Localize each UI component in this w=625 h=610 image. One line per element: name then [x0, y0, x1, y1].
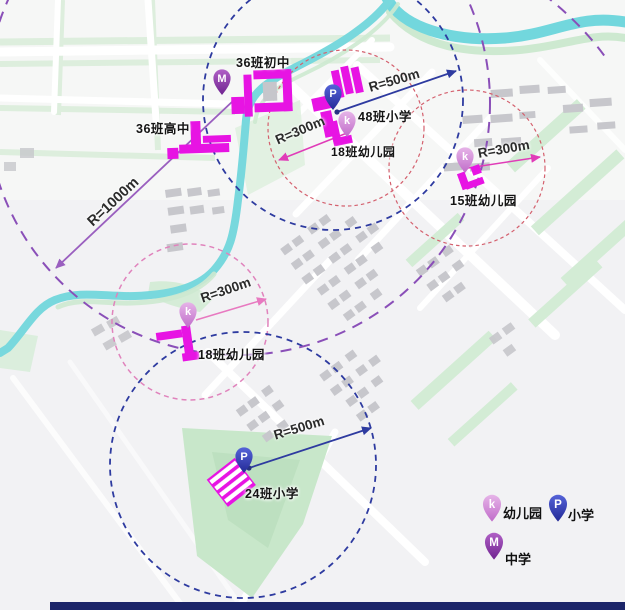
planning-map: M P k k k P k P M	[0, 0, 625, 610]
svg-text:k: k	[344, 115, 351, 127]
bottom-bar	[50, 602, 625, 610]
legend-kindergarten-label: 幼儿园	[503, 503, 542, 522]
legend-middle-label: 中学	[505, 549, 531, 568]
svg-text:k: k	[185, 306, 192, 318]
svg-text:P: P	[329, 88, 336, 100]
svg-text:k: k	[489, 499, 496, 511]
legend-primary-label: 小学	[568, 505, 594, 524]
svg-text:P: P	[240, 451, 247, 463]
svg-text:k: k	[462, 151, 469, 163]
label-primary-48: 48班小学	[358, 106, 412, 125]
svg-text:M: M	[489, 537, 499, 549]
label-kg-18-north: 18班幼儿园	[331, 143, 395, 160]
label-primary-24: 24班小学	[245, 483, 299, 502]
label-kg-15: 15班幼儿园	[450, 190, 517, 209]
label-kg-18-west: 18班幼儿园	[198, 344, 265, 363]
label-senior-high: 36班高中	[136, 118, 190, 137]
label-junior-high: 36班初中	[236, 52, 290, 71]
svg-text:M: M	[217, 73, 226, 85]
svg-text:P: P	[554, 499, 562, 511]
